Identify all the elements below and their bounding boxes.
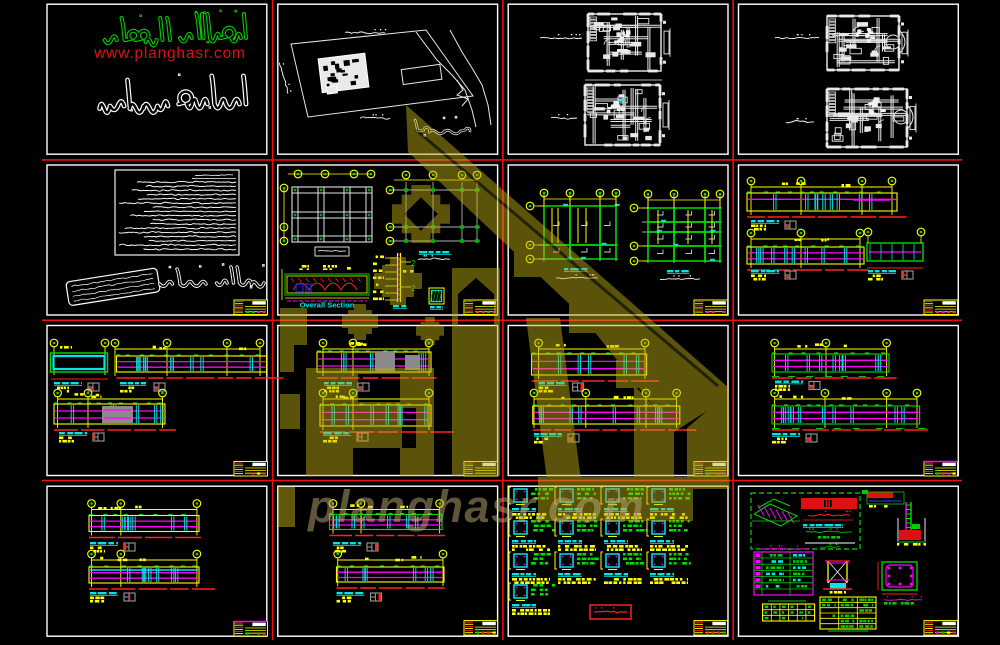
svg-text:Overall Section: Overall Section bbox=[300, 301, 355, 310]
svg-text:www.planghasr.com: www.planghasr.com bbox=[93, 45, 245, 62]
svg-text:planghasr.com: planghasr.com bbox=[307, 481, 645, 532]
